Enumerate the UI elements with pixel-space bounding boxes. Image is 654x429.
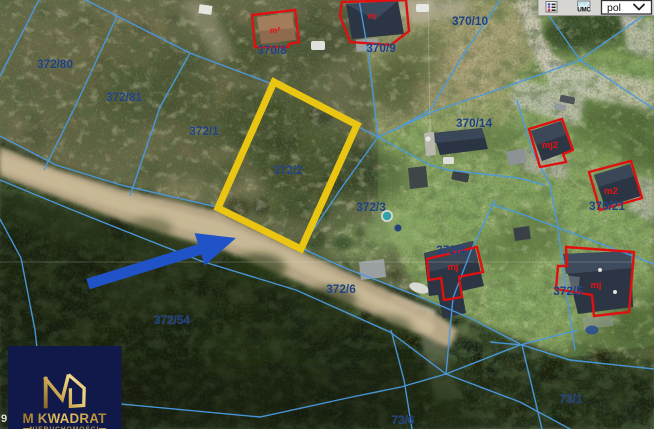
svg-text:372/81: 372/81 bbox=[106, 90, 143, 104]
svg-text:372/5: 372/5 bbox=[553, 284, 583, 298]
svg-text:370/10: 370/10 bbox=[452, 14, 489, 28]
svg-text:9: 9 bbox=[1, 413, 7, 425]
svg-text:M KWADRAT: M KWADRAT bbox=[22, 411, 107, 426]
svg-text:372/1: 372/1 bbox=[189, 124, 219, 138]
svg-text:370/8: 370/8 bbox=[257, 43, 287, 57]
svg-text:mj2: mj2 bbox=[542, 140, 558, 151]
svg-text:m²: m² bbox=[270, 25, 281, 35]
svg-text:73/1: 73/1 bbox=[560, 392, 583, 406]
svg-text:372/80: 372/80 bbox=[37, 57, 74, 71]
svg-text:mj: mj bbox=[590, 280, 601, 291]
svg-text:370/9: 370/9 bbox=[366, 41, 396, 55]
svg-text:372/4: 372/4 bbox=[436, 243, 466, 257]
svg-text:mj: mj bbox=[447, 262, 458, 273]
svg-text:pol: pol bbox=[607, 2, 621, 14]
svg-text:370/21: 370/21 bbox=[589, 199, 626, 213]
svg-text:370/14: 370/14 bbox=[456, 116, 493, 130]
svg-text:372/2: 372/2 bbox=[273, 163, 303, 177]
svg-text:m: m bbox=[368, 11, 376, 22]
svg-text:73/6: 73/6 bbox=[392, 413, 415, 427]
svg-text:372/54: 372/54 bbox=[154, 313, 191, 327]
svg-text:372/6: 372/6 bbox=[326, 282, 356, 296]
svg-text:UMC: UMC bbox=[577, 7, 591, 14]
svg-text:372/3: 372/3 bbox=[356, 200, 386, 214]
svg-text:m2: m2 bbox=[604, 186, 618, 197]
